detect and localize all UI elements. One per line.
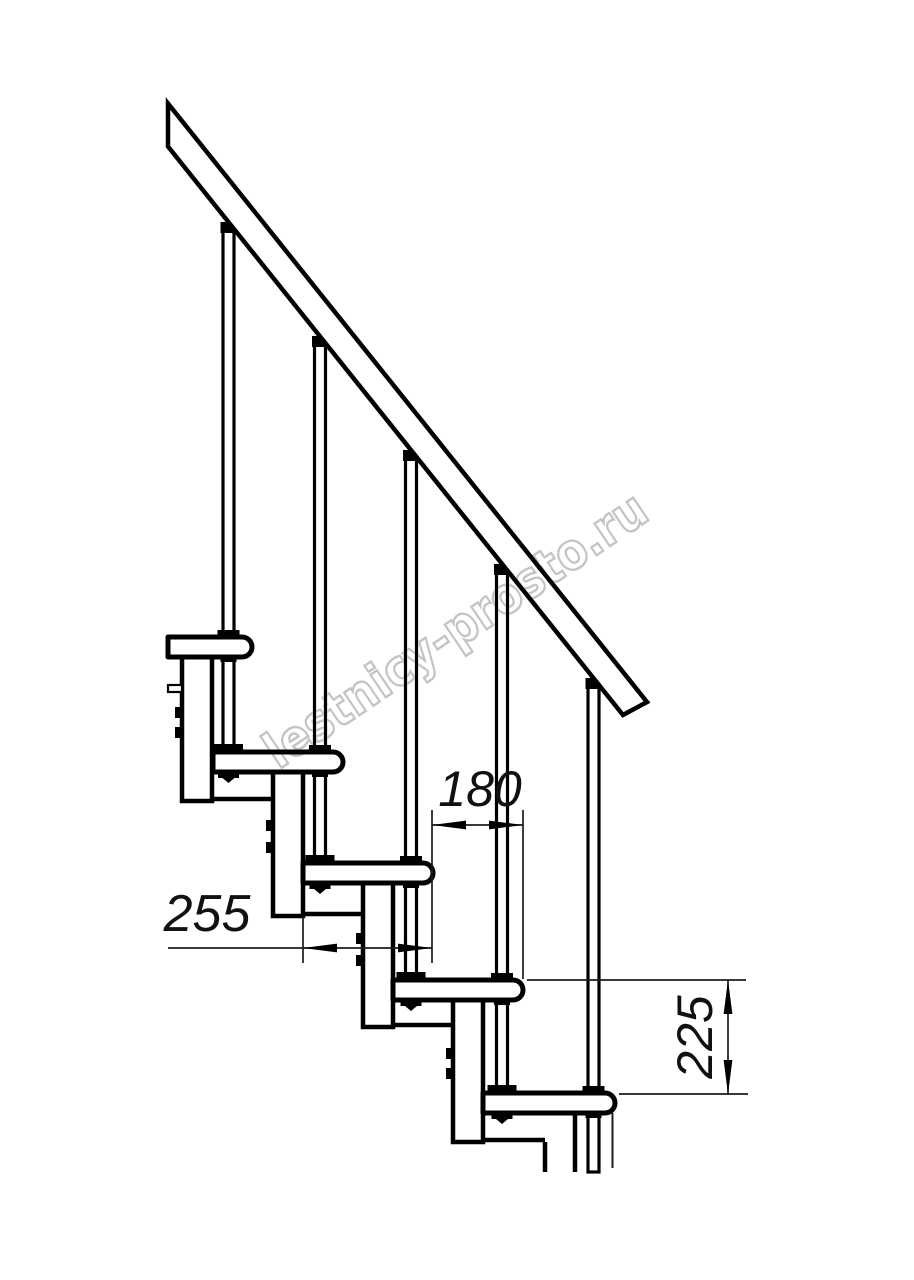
- support-column-4: [453, 1000, 483, 1142]
- bolt-icon: [446, 1068, 454, 1079]
- support-column-2: [273, 772, 303, 916]
- under-tread-band: [586, 1113, 602, 1118]
- pierce-collar: [400, 856, 422, 864]
- base-collar: [397, 972, 426, 980]
- dimension-value-tread-depth: 255: [163, 885, 252, 943]
- support-column-1: [182, 657, 212, 801]
- under-tread-band: [403, 883, 419, 888]
- pierce-collar: [491, 973, 513, 981]
- bolt-icon: [446, 1048, 454, 1059]
- staircase-section-drawing: 180 255 225 lestnicy-prosto.ru: [0, 0, 914, 1280]
- baluster-2: [315, 342, 326, 857]
- tread-5: [483, 1093, 615, 1113]
- tread-1: [168, 637, 252, 657]
- under-tread-band: [312, 772, 328, 777]
- bolt-icon: [175, 727, 183, 738]
- bolt-icon: [175, 707, 183, 718]
- staircase-drawing-page: 180 255 225 lestnicy-prosto.ru: [0, 0, 914, 1280]
- base-collar: [488, 1085, 517, 1093]
- dimension-value-step-run: 180: [438, 761, 522, 817]
- base-collar: [306, 855, 335, 863]
- baluster-3: [406, 456, 417, 974]
- flange-stub-cropped: [168, 685, 182, 692]
- under-tread-band: [494, 1000, 510, 1005]
- tread-4: [393, 980, 523, 1000]
- bolt-icon: [266, 842, 274, 853]
- support-column-3: [363, 883, 393, 1027]
- pierce-collar: [583, 1086, 605, 1094]
- under-tread-band: [221, 657, 237, 662]
- baluster-4: [497, 570, 508, 1087]
- baluster-1: [223, 228, 234, 746]
- pierce-collar: [218, 630, 240, 638]
- bolt-icon: [356, 955, 364, 966]
- base-collar: [214, 744, 243, 752]
- bolt-icon: [356, 933, 364, 944]
- tread-3: [303, 863, 433, 883]
- dimension-value-riser-height: 225: [667, 995, 723, 1080]
- bolt-icon: [266, 820, 274, 831]
